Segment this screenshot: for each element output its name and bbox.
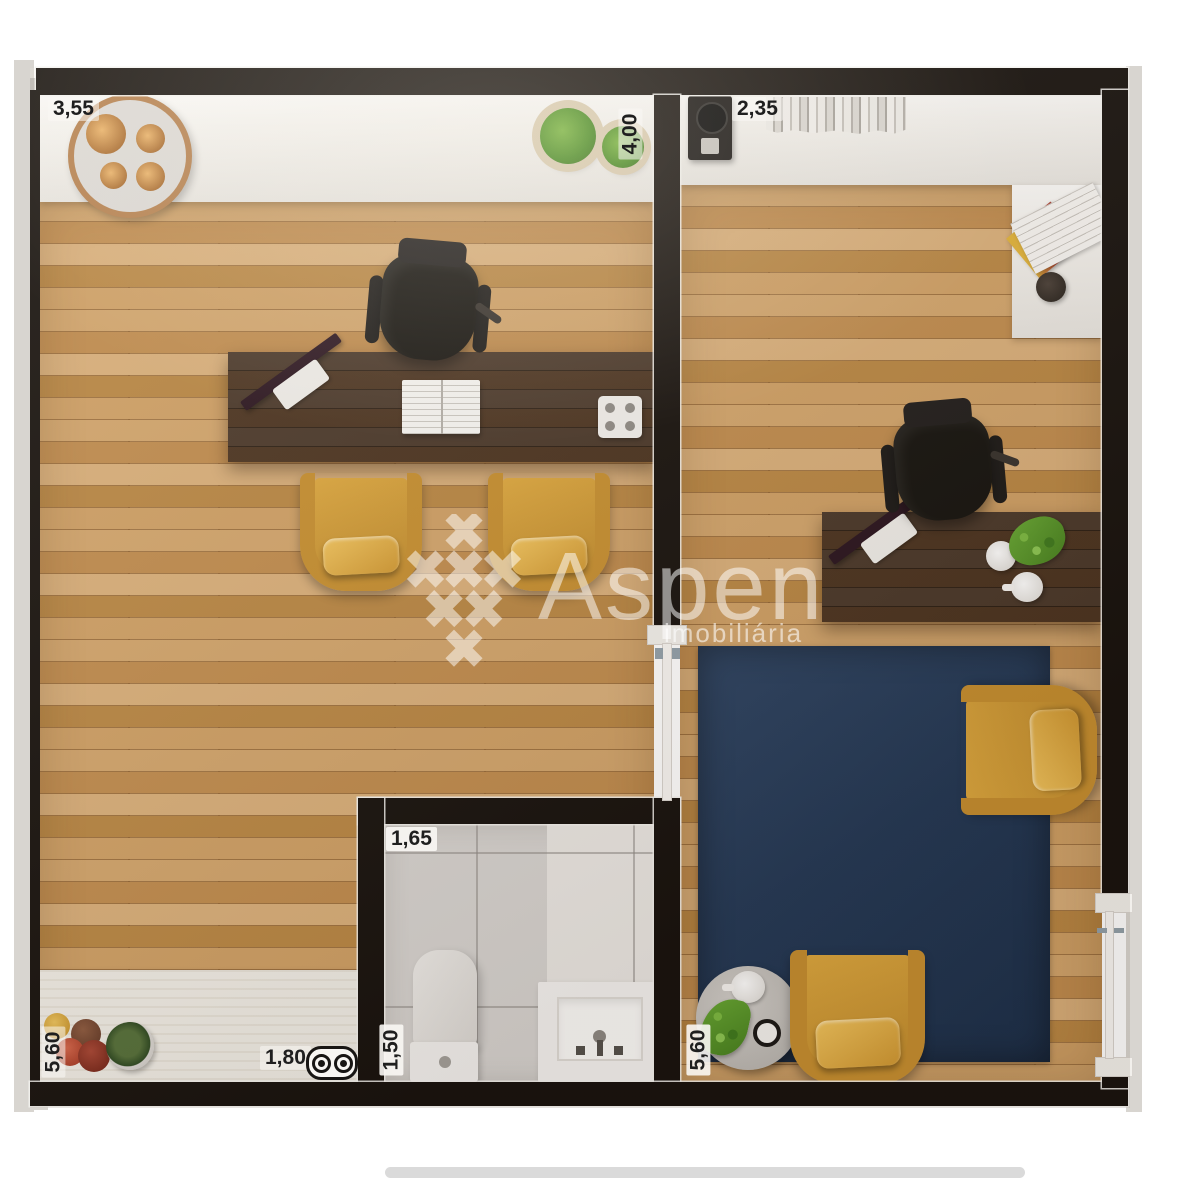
- dim-right-room-width: 2,35: [732, 97, 783, 121]
- toilet-bowl: [413, 950, 477, 1048]
- pastry: [136, 124, 165, 153]
- floor-plan: 3,55 4,00 2,35 1,65 1,50 1,80 5,60 5,60 …: [0, 0, 1179, 1179]
- dim-bathroom-depth: 1,50: [379, 1025, 403, 1076]
- bathroom-wall-right: [654, 798, 680, 1088]
- potted-cactus: [540, 108, 596, 164]
- chair-cushion: [322, 535, 399, 575]
- cup: [753, 1019, 781, 1047]
- sliding-door-leaf: [1106, 912, 1113, 1058]
- coffee-tray: [598, 396, 642, 438]
- speaker: [688, 96, 732, 160]
- chair-seat: [376, 252, 481, 364]
- sink-faucet-stem: [597, 1040, 603, 1056]
- cooktop-icon: [306, 1046, 358, 1080]
- speaker-port: [701, 138, 719, 154]
- teapot: [1011, 572, 1043, 602]
- dim-left-room-side: 4,00: [618, 109, 642, 160]
- chair-cushion: [814, 1017, 900, 1070]
- door-hinge: [655, 648, 663, 659]
- wall-left: [30, 90, 40, 1096]
- book-row: [766, 97, 906, 135]
- page-shadow-bar: [385, 1167, 1025, 1178]
- tray-cup: [625, 421, 635, 431]
- chair-cushion: [1029, 708, 1082, 791]
- wall-divider: [654, 95, 680, 630]
- interior-door-leaf: [663, 644, 671, 800]
- dim-bathroom-width: 1,65: [386, 827, 437, 851]
- open-notebook: [402, 380, 480, 434]
- chair-cushion: [510, 535, 587, 575]
- dim-left-room-depth: 5,60: [41, 1027, 65, 1078]
- toilet-flush-button: [439, 1056, 451, 1068]
- wall-bottom: [30, 1082, 1128, 1106]
- sink-handle: [576, 1046, 585, 1055]
- dim-counter-length: 1,80: [260, 1046, 311, 1070]
- teapot: [731, 971, 765, 1003]
- pencil-cup: [1036, 272, 1066, 302]
- tray-cup: [605, 403, 615, 413]
- wall-right-upper: [1102, 90, 1128, 905]
- pastry: [136, 162, 165, 191]
- door-hinge: [672, 648, 680, 659]
- exterior-trim-right: [1126, 66, 1142, 1112]
- pastry: [100, 162, 127, 189]
- bathroom-wall-top: [358, 798, 680, 824]
- armchair: [961, 685, 1097, 815]
- chair-seat: [891, 412, 996, 524]
- interior-door-jamb: [648, 626, 686, 644]
- speaker-woofer: [696, 102, 728, 134]
- dim-left-room-width: 3,55: [48, 97, 99, 121]
- glass-vase-plant: [106, 1022, 154, 1070]
- door-handle: [1114, 928, 1124, 933]
- bathroom-sink: [538, 982, 658, 1082]
- toilet: [410, 950, 480, 1092]
- wall-top: [36, 68, 1128, 95]
- office-chair: [363, 235, 496, 371]
- sink-handle: [614, 1046, 623, 1055]
- tray-cup: [605, 421, 615, 431]
- sliding-door-jamb: [1096, 894, 1132, 912]
- armchair: [790, 950, 925, 1084]
- guest-chair: [300, 473, 422, 591]
- dim-right-room-depth: 5,60: [686, 1025, 710, 1076]
- office-chair: [877, 395, 1010, 531]
- door-handle: [1097, 928, 1107, 933]
- sliding-door-jamb: [1096, 1058, 1132, 1076]
- tile-grout-line: [384, 852, 654, 854]
- tray-cup: [625, 403, 635, 413]
- guest-chair: [488, 473, 610, 591]
